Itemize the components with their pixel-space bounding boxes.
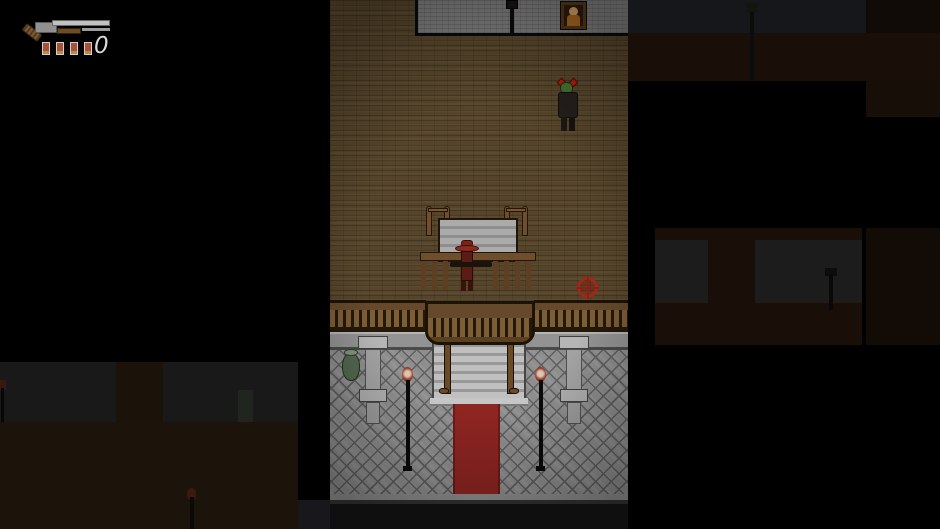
fog-figure: [238, 390, 253, 422]
stone-pillar: [567, 402, 581, 424]
stone-pillar: [365, 349, 381, 391]
fog-wall-block: [0, 362, 116, 422]
stair-handrail: [444, 342, 451, 394]
balcony-bump: [425, 301, 535, 345]
lamp-silhouette-icon: [829, 274, 833, 310]
fog-region: [298, 500, 330, 529]
fog-region: [628, 33, 940, 81]
chair-rail: [428, 208, 448, 212]
shotgun-shell-icon: [84, 42, 92, 55]
stone-pillar: [560, 389, 588, 402]
zombie-leg: [561, 117, 567, 131]
game-viewport[interactable]: 0: [0, 0, 940, 529]
hud: 0: [24, 14, 134, 58]
zombie-health-row: [558, 71, 582, 81]
green-vase: [342, 349, 360, 383]
balcony-railing: [534, 300, 628, 332]
shotgun-barrel: [52, 20, 110, 26]
stone-pillar: [358, 336, 388, 349]
red-carpet: [453, 404, 500, 494]
shell-row: [42, 40, 98, 54]
railing-balusters: [428, 318, 532, 337]
railing-band: [534, 300, 628, 310]
torch-silhouette-icon: [1, 388, 4, 422]
torch-base: [403, 466, 412, 471]
fog-wall-block: [163, 362, 298, 422]
stone-pillar: [359, 389, 387, 402]
crosshair-marker-icon: [577, 277, 598, 298]
lamp-silhouette-icon: [750, 12, 754, 80]
railing-balusters: [534, 310, 628, 327]
railing-balusters: [330, 310, 426, 327]
stair-handrail: [507, 342, 514, 394]
fog-region: [866, 228, 940, 345]
chair-leg: [421, 261, 426, 290]
portrait-canvas: [564, 5, 583, 26]
torch-base: [536, 466, 545, 471]
vase-body: [342, 353, 360, 381]
portrait-painting: [560, 1, 587, 30]
chair-leg: [504, 261, 509, 290]
chair-leg: [443, 261, 448, 290]
player-boot: [468, 281, 473, 291]
player-boot: [461, 281, 466, 291]
portrait-body: [567, 15, 580, 26]
railing-band: [330, 327, 426, 332]
fog-wall-block: [655, 240, 708, 303]
stone-pillar: [566, 349, 582, 391]
saloon-room: [330, 0, 628, 504]
shotgun-shell-icon: [70, 42, 78, 55]
player-rifle-icon: [450, 262, 492, 267]
railing-band: [330, 300, 426, 310]
shotgun-pump: [57, 28, 81, 34]
shotgun-tube: [82, 28, 110, 31]
zombie-torso: [558, 92, 578, 118]
fog-region: [330, 504, 628, 529]
stair-handrail-foot: [509, 388, 519, 394]
wall-top: [415, 0, 628, 36]
fog-region: [866, 81, 940, 117]
fog-region: [0, 422, 298, 529]
wall-lamp-icon: [510, 8, 514, 35]
torch-silhouette-icon: [190, 497, 194, 529]
ammo-count: 0: [94, 35, 109, 58]
railing-band: [534, 327, 628, 332]
floor-base-shadow: [330, 500, 628, 504]
zombie-leg: [569, 117, 575, 131]
balcony-railing: [330, 300, 426, 332]
fog-wall-block: [755, 240, 862, 303]
stair-handrail-foot: [439, 388, 449, 394]
chair-leg: [432, 261, 437, 290]
vase-rim: [344, 349, 358, 356]
chair-rail: [506, 208, 526, 212]
chair-leg: [526, 261, 531, 290]
shotgun-shell-icon: [42, 42, 50, 55]
chair-leg: [515, 261, 520, 290]
stone-pillar: [366, 402, 380, 424]
railing-band: [428, 337, 532, 343]
zombie-enemy[interactable]: [556, 82, 584, 132]
stone-pillar: [559, 336, 589, 349]
torch-pole: [406, 380, 410, 468]
torch-pole: [539, 380, 543, 468]
fog-region: [866, 0, 940, 33]
shotgun-shell-icon: [56, 42, 64, 55]
player-cowboy[interactable]: [450, 238, 494, 292]
